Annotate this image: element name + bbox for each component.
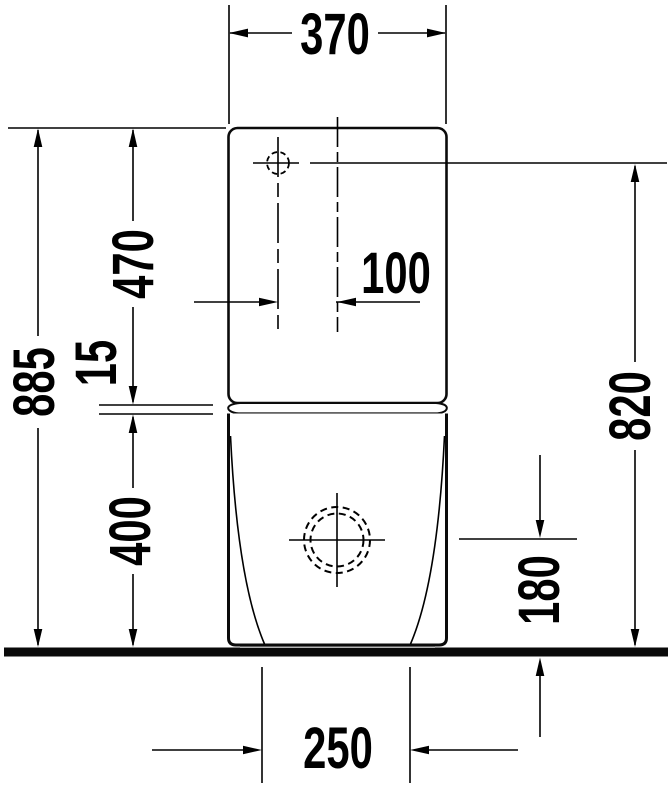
dim-250: 250: [152, 667, 518, 783]
dim-100-label: 100: [361, 240, 431, 305]
dim-370-label: 370: [300, 1, 370, 66]
toilet-front-elevation-drawing: 370 100 885 470 15 400: [0, 0, 672, 788]
dim-400-arrow-bottom: [129, 629, 138, 647]
dim-470-arrow-top: [129, 129, 138, 148]
dim-400-label: 400: [97, 496, 162, 566]
dim-470-label: 470: [100, 229, 165, 299]
dim-820-label: 820: [597, 371, 662, 441]
dim-15-label: 15: [63, 340, 128, 386]
dim-370-arrow-left: [229, 29, 248, 38]
dim-820-arrow-top: [631, 164, 640, 182]
dim-15: 15: [63, 340, 213, 414]
dim-180: 180: [459, 455, 577, 737]
dim-885: 885: [1, 129, 66, 648]
dim-180-arrow-bottom: [536, 658, 545, 677]
dim-820-arrow-bottom: [631, 629, 640, 647]
floor-line: [4, 648, 668, 657]
dim-885-arrow-top: [34, 129, 43, 148]
dim-250-arrow-right: [410, 746, 429, 754]
dim-470-arrow-bottom: [129, 386, 138, 405]
dim-370: 370: [229, 1, 446, 124]
dim-400-arrow-top: [129, 415, 138, 434]
dim-180-arrow-top: [536, 520, 545, 538]
dim-885-label: 885: [1, 347, 66, 417]
dim-370-arrow-right: [427, 29, 446, 38]
dim-180-label: 180: [506, 555, 571, 625]
technical-drawing-page: 370 100 885 470 15 400: [0, 0, 672, 788]
dim-250-arrow-left: [243, 746, 262, 754]
dim-885-arrow-bottom: [34, 629, 43, 647]
dim-400: 400: [97, 415, 162, 648]
dim-250-label: 250: [303, 715, 373, 780]
seat-band: [228, 403, 447, 413]
